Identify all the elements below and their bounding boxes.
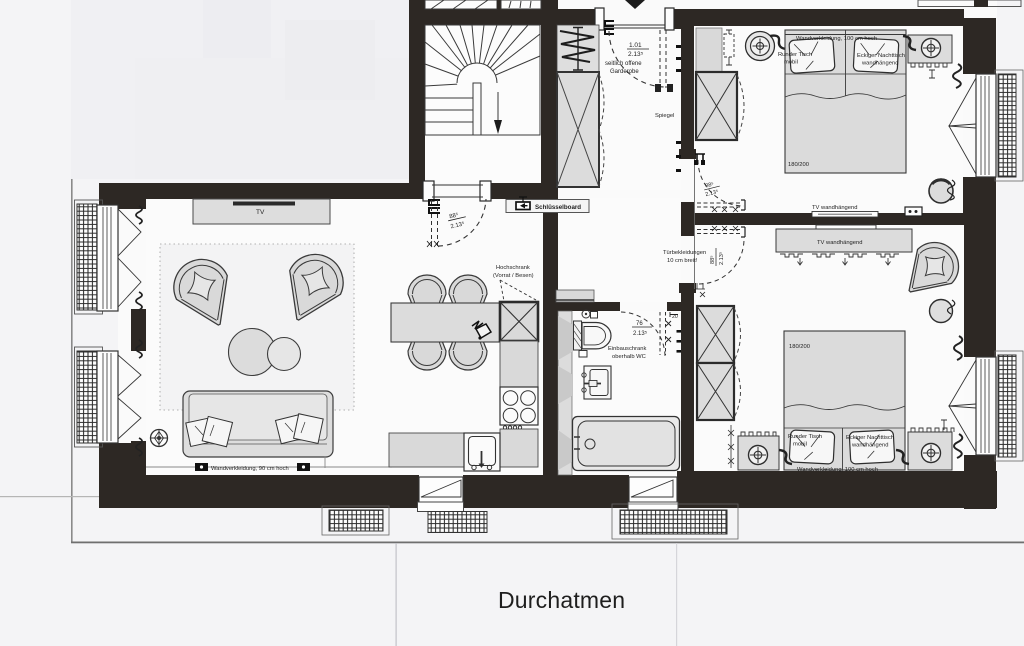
svg-text:(Vorrat / Besen): (Vorrat / Besen)	[493, 273, 534, 279]
svg-text:Türbekleidungen: Türbekleidungen	[663, 250, 706, 256]
svg-text:20: 20	[672, 314, 678, 320]
svg-text:wandhängend: wandhängend	[851, 443, 888, 449]
svg-text:88⁵: 88⁵	[709, 255, 716, 264]
svg-text:Durchatmen: Durchatmen	[498, 587, 625, 613]
svg-text:Einbauschrank: Einbauschrank	[608, 346, 646, 352]
svg-text:Wandverkleidung, 90 cm hoch: Wandverkleidung, 90 cm hoch	[211, 466, 289, 472]
svg-text:76: 76	[636, 321, 643, 327]
svg-text:wandhängend: wandhängend	[861, 61, 898, 67]
svg-text:Hochschrank: Hochschrank	[496, 265, 530, 271]
svg-text:TV: TV	[256, 209, 265, 216]
svg-text:Wandverkleidung, 100 cm hoch: Wandverkleidung, 100 cm hoch	[796, 36, 877, 42]
svg-text:2.13⁵: 2.13⁵	[718, 252, 725, 265]
svg-text:Runder Tisch: Runder Tisch	[778, 52, 812, 58]
svg-text:Garderobe: Garderobe	[610, 69, 639, 75]
svg-text:oberhalb WC: oberhalb WC	[612, 354, 646, 360]
svg-text:2.13⁵: 2.13⁵	[633, 330, 648, 337]
svg-text:180/200: 180/200	[788, 162, 809, 168]
svg-text:10 cm breit!: 10 cm breit!	[667, 258, 698, 264]
svg-text:Wandverkleidung, 100 cm hoch: Wandverkleidung, 100 cm hoch	[797, 467, 878, 473]
svg-text:180/200: 180/200	[789, 344, 810, 350]
svg-text:TV wandhängend: TV wandhängend	[812, 205, 857, 211]
svg-text:Schlüsselboard: Schlüsselboard	[535, 204, 581, 211]
svg-text:2.13⁵: 2.13⁵	[628, 51, 644, 58]
svg-text:mobil: mobil	[784, 60, 798, 66]
svg-text:Eckiger Nachttisch: Eckiger Nachttisch	[846, 435, 894, 441]
svg-text:TV wandhängend: TV wandhängend	[817, 240, 862, 246]
svg-text:seitlich offene: seitlich offene	[605, 61, 642, 67]
svg-text:1.01: 1.01	[629, 42, 642, 49]
svg-text:mobil: mobil	[793, 442, 807, 448]
svg-text:Spiegel: Spiegel	[655, 113, 674, 119]
svg-text:Eckiger Nachttisch: Eckiger Nachttisch	[857, 53, 905, 59]
svg-text:Runder Tisch: Runder Tisch	[788, 434, 822, 440]
